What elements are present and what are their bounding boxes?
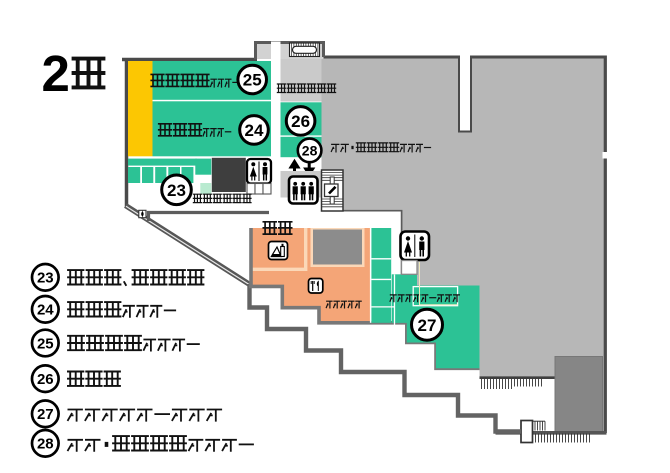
svg-text:23: 23 xyxy=(167,181,186,200)
svg-text:27: 27 xyxy=(37,406,54,423)
svg-text:25: 25 xyxy=(37,335,54,352)
svg-text:25: 25 xyxy=(243,71,262,90)
svg-text:26: 26 xyxy=(291,112,310,131)
svg-text:26: 26 xyxy=(37,371,54,388)
svg-text:24: 24 xyxy=(37,302,54,319)
svg-text:2: 2 xyxy=(42,45,70,102)
svg-text:28: 28 xyxy=(37,436,54,453)
svg-text:27: 27 xyxy=(418,316,437,335)
svg-text:24: 24 xyxy=(245,121,264,140)
svg-text:28: 28 xyxy=(302,142,318,158)
svg-text:23: 23 xyxy=(37,270,54,287)
